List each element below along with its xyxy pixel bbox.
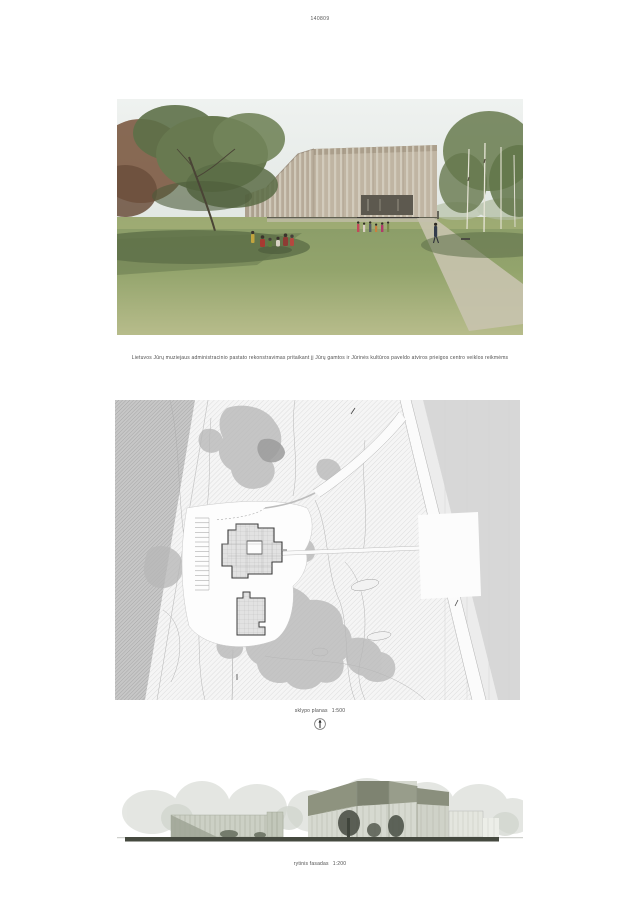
plaza (418, 512, 481, 599)
siteplan-label: sklypo planas (295, 708, 328, 714)
entry-code: 140809 (0, 16, 640, 22)
ground-band (125, 837, 499, 842)
siteplan-caption: sklypo planas1:500 (0, 708, 640, 714)
elevation-caption: rytinis fasadas1:200 (0, 861, 640, 867)
elevation-figure (117, 766, 523, 852)
secondary-building-footprint (237, 592, 265, 635)
elevation-scale: 1:200 (333, 861, 347, 867)
site-plan-figure (115, 400, 520, 700)
park-bench (461, 238, 470, 240)
elevation-label: rytinis fasadas (294, 861, 329, 867)
siteplan-scale: 1:500 (332, 708, 346, 714)
exterior-rendering-image (117, 99, 523, 335)
elevation-left-volume (171, 812, 283, 838)
exterior-rendering-figure (117, 99, 523, 335)
elevation-main-volume (308, 781, 449, 837)
project-title: Lietuvos Jūrų muziejaus administracinio … (0, 355, 640, 361)
competition-board: 140809 (0, 0, 640, 915)
north-arrow-icon (313, 717, 327, 731)
site-plan-drawing (115, 400, 520, 700)
elevation-drawing (117, 766, 523, 852)
